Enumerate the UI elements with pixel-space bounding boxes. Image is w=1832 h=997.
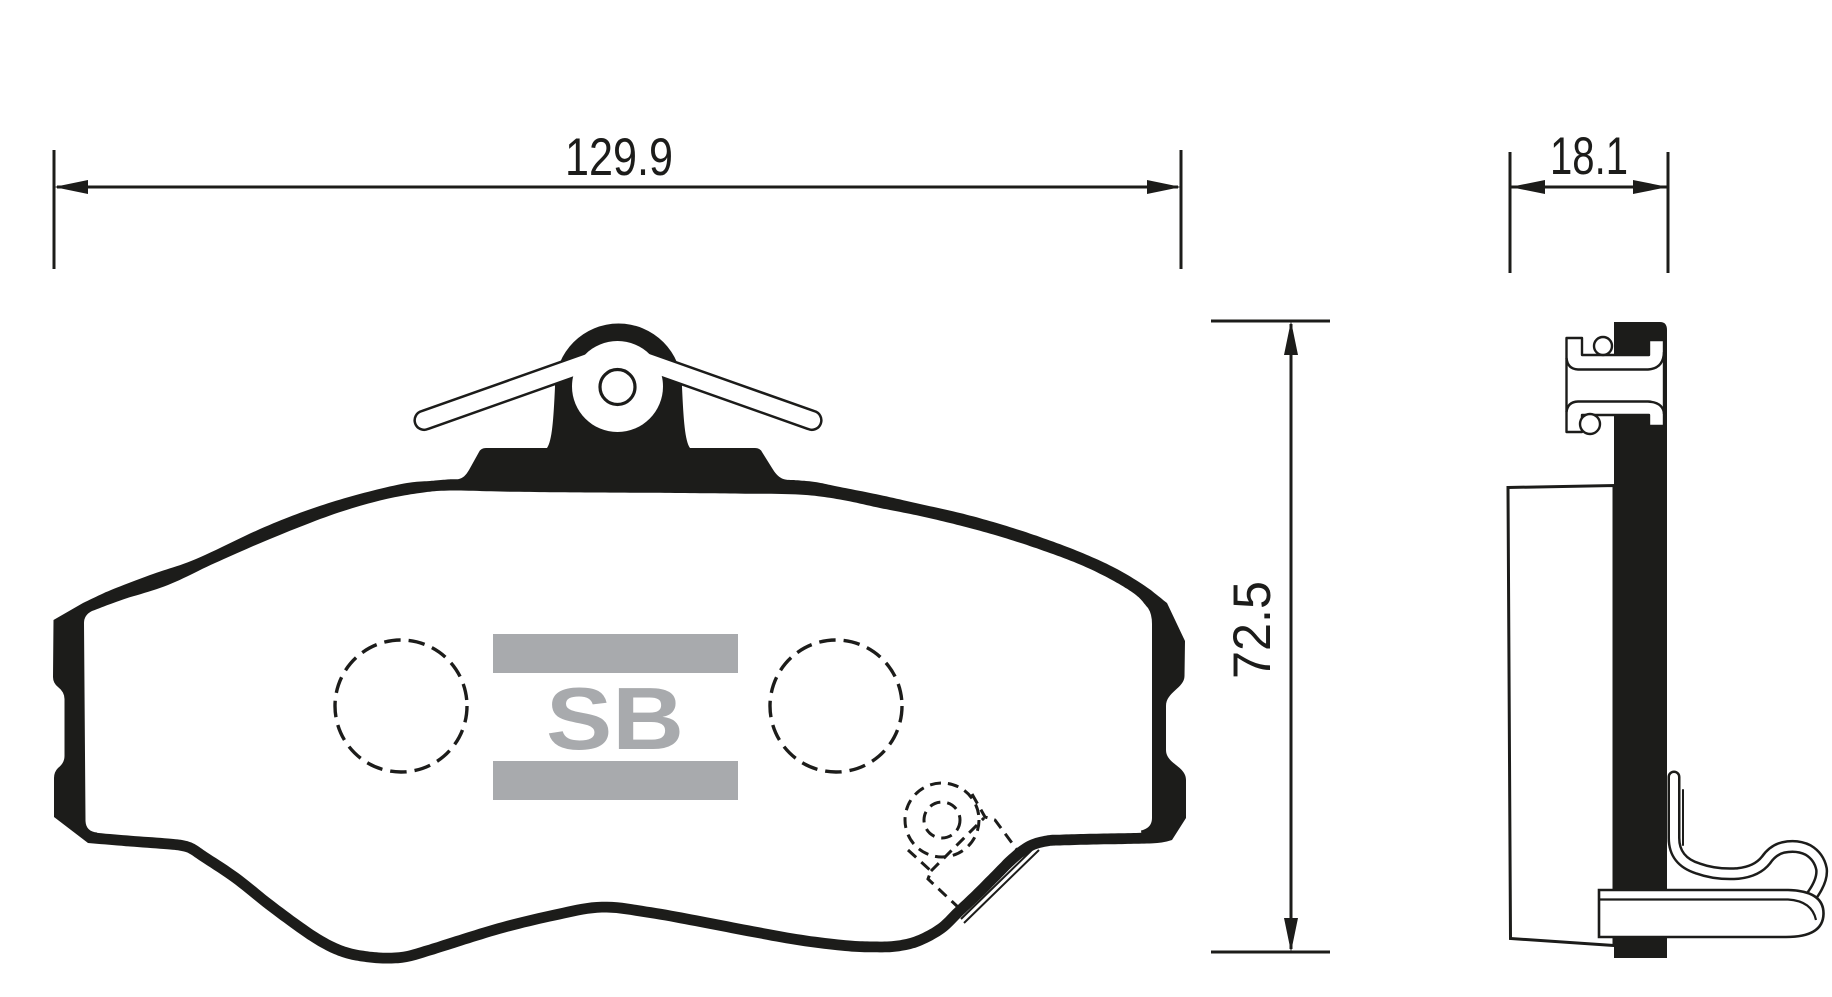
svg-text:129.9: 129.9	[565, 128, 673, 187]
svg-text:72.5: 72.5	[1223, 581, 1282, 679]
svg-text:18.1: 18.1	[1550, 127, 1628, 186]
svg-text:SB: SB	[546, 669, 684, 768]
